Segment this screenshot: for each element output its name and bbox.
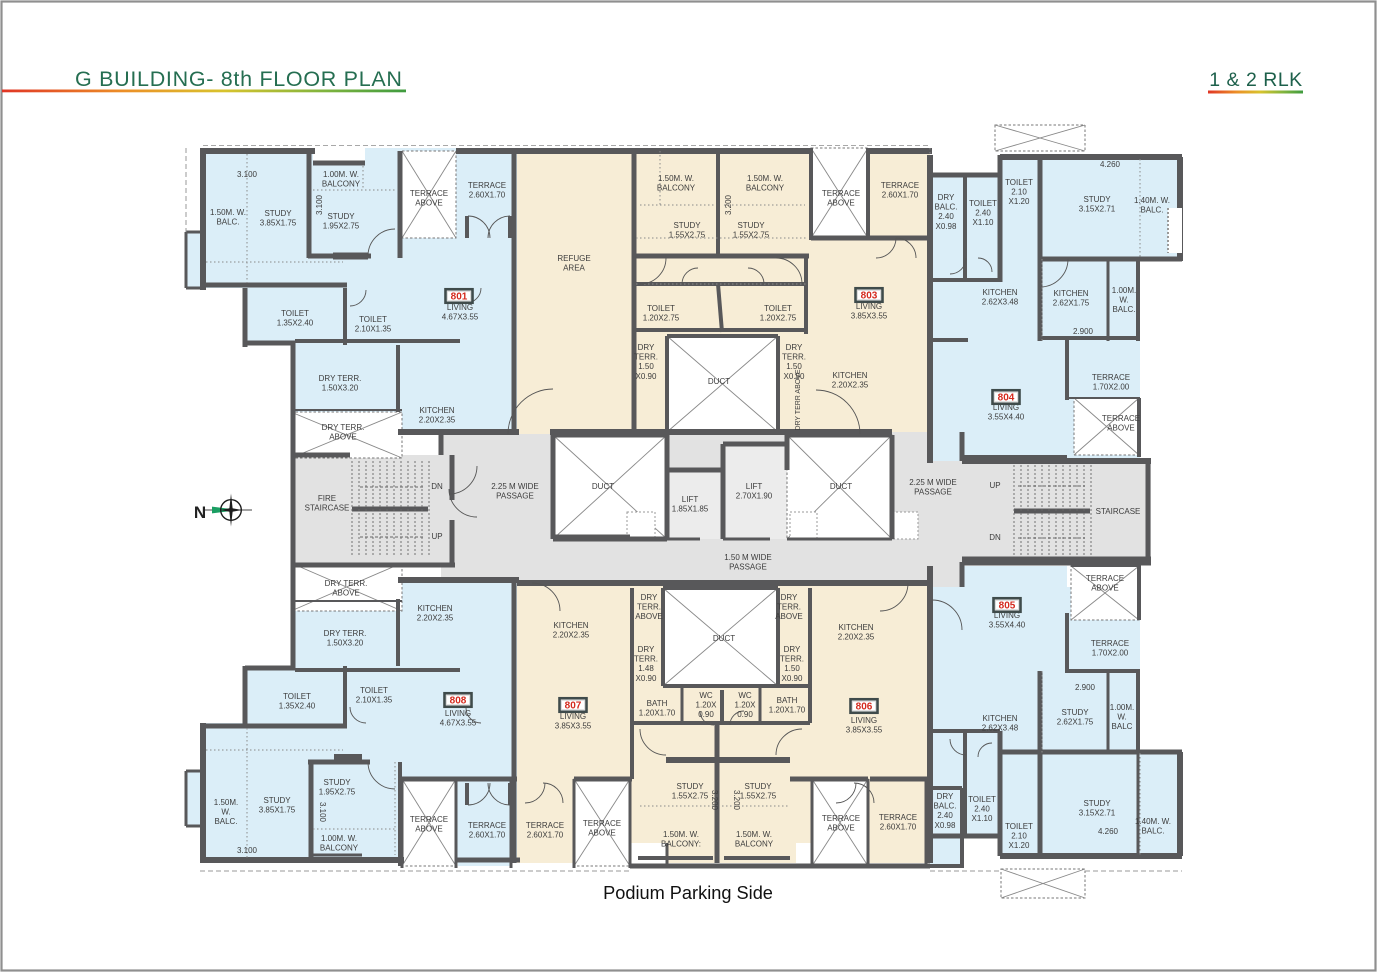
svg-text:PASSAGE: PASSAGE xyxy=(729,563,767,572)
svg-text:BALC.: BALC. xyxy=(214,817,237,826)
svg-text:0.90: 0.90 xyxy=(698,710,714,719)
svg-text:3.100: 3.100 xyxy=(237,170,258,179)
svg-text:TERR.: TERR. xyxy=(780,655,804,664)
svg-text:ABOVE: ABOVE xyxy=(1107,424,1135,433)
svg-text:TERRACE: TERRACE xyxy=(526,821,564,830)
svg-text:2.70X1.90: 2.70X1.90 xyxy=(736,492,773,501)
svg-text:W.: W. xyxy=(221,808,230,817)
svg-text:DRY: DRY xyxy=(937,792,954,801)
svg-text:TOILET: TOILET xyxy=(647,304,675,313)
svg-text:BALC.: BALC. xyxy=(1140,206,1163,215)
svg-text:LIFT: LIFT xyxy=(682,495,699,504)
svg-text:TERR.: TERR. xyxy=(637,603,661,612)
svg-text:BALC.: BALC. xyxy=(1141,827,1164,836)
svg-text:DRY: DRY xyxy=(784,645,801,654)
svg-text:DRY TERR.: DRY TERR. xyxy=(324,629,367,638)
svg-text:TERRACE: TERRACE xyxy=(822,814,860,823)
svg-text:808: 808 xyxy=(450,695,467,706)
svg-text:DRY: DRY xyxy=(638,645,655,654)
svg-text:TERR.: TERR. xyxy=(782,353,806,362)
svg-text:2.10X1.35: 2.10X1.35 xyxy=(355,325,392,334)
svg-text:1.20X1.70: 1.20X1.70 xyxy=(639,709,676,718)
svg-text:X1.20: X1.20 xyxy=(1009,841,1030,850)
svg-text:STAIRCASE: STAIRCASE xyxy=(1096,507,1141,516)
svg-text:807: 807 xyxy=(565,700,582,711)
svg-text:STUDY: STUDY xyxy=(263,796,291,805)
svg-text:BALC: BALC xyxy=(1112,722,1133,731)
svg-text:1.55X2.75: 1.55X2.75 xyxy=(740,792,777,801)
svg-text:2.20X2.35: 2.20X2.35 xyxy=(419,416,456,425)
svg-text:1.95X2.75: 1.95X2.75 xyxy=(319,788,356,797)
svg-text:KITCHEN: KITCHEN xyxy=(982,714,1017,723)
svg-text:DRY: DRY xyxy=(786,343,803,352)
svg-text:3.85X1.75: 3.85X1.75 xyxy=(260,219,297,228)
svg-text:1.50: 1.50 xyxy=(638,362,654,371)
svg-text:2.60X1.70: 2.60X1.70 xyxy=(469,191,506,200)
svg-text:TERRACE: TERRACE xyxy=(468,181,506,190)
svg-text:TERRACE: TERRACE xyxy=(583,819,621,828)
svg-text:3.85X3.55: 3.85X3.55 xyxy=(555,722,592,731)
svg-text:BALCONY: BALCONY xyxy=(320,844,359,853)
svg-text:1.00M.: 1.00M. xyxy=(1110,703,1134,712)
svg-text:AREA: AREA xyxy=(563,264,585,273)
svg-text:1.50M. W.: 1.50M. W. xyxy=(663,830,699,839)
svg-text:2.20X2.35: 2.20X2.35 xyxy=(417,614,454,623)
svg-text:BALC.: BALC. xyxy=(933,802,956,811)
svg-text:TERRACE: TERRACE xyxy=(1092,373,1130,382)
svg-text:X0.98: X0.98 xyxy=(936,222,957,231)
svg-text:Podium Parking Side: Podium Parking Side xyxy=(603,883,773,903)
svg-text:UP: UP xyxy=(989,481,1000,490)
svg-text:TOILET: TOILET xyxy=(360,686,388,695)
svg-text:W.: W. xyxy=(1117,713,1126,722)
svg-text:STUDY: STUDY xyxy=(1061,708,1089,717)
svg-text:2.40: 2.40 xyxy=(937,811,953,820)
svg-text:N: N xyxy=(194,503,206,522)
svg-text:BALCONY:: BALCONY: xyxy=(661,840,701,849)
svg-text:X0.90: X0.90 xyxy=(636,372,657,381)
svg-text:DRY: DRY xyxy=(938,193,955,202)
svg-text:TERRACE: TERRACE xyxy=(1086,574,1124,583)
svg-text:3.200: 3.200 xyxy=(710,790,719,811)
svg-text:TERRACE: TERRACE xyxy=(468,821,506,830)
svg-text:0.90: 0.90 xyxy=(737,710,753,719)
svg-text:X0.98: X0.98 xyxy=(935,821,956,830)
svg-text:1.00M.: 1.00M. xyxy=(1112,286,1136,295)
svg-text:TOILET: TOILET xyxy=(359,315,387,324)
svg-text:3.55X4.40: 3.55X4.40 xyxy=(989,621,1026,630)
svg-text:2.40: 2.40 xyxy=(975,209,991,218)
svg-text:PASSAGE: PASSAGE xyxy=(496,492,534,501)
svg-text:2.25 M WIDE: 2.25 M WIDE xyxy=(491,482,539,491)
svg-text:LIVING: LIVING xyxy=(447,303,473,312)
svg-text:2.20X2.35: 2.20X2.35 xyxy=(553,631,590,640)
svg-text:KITCHEN: KITCHEN xyxy=(982,288,1017,297)
svg-text:3.100: 3.100 xyxy=(237,846,258,855)
svg-text:2.62X1.75: 2.62X1.75 xyxy=(1057,718,1094,727)
svg-text:4.67X3.55: 4.67X3.55 xyxy=(440,719,477,728)
svg-text:DRY: DRY xyxy=(641,593,658,602)
svg-text:1.20X: 1.20X xyxy=(696,701,718,710)
svg-text:KITCHEN: KITCHEN xyxy=(1053,289,1088,298)
svg-text:ABOVE: ABOVE xyxy=(329,433,357,442)
svg-text:BALCONY: BALCONY xyxy=(735,840,774,849)
svg-text:UP: UP xyxy=(431,532,442,541)
svg-text:4.260: 4.260 xyxy=(1098,827,1119,836)
svg-text:TERR.: TERR. xyxy=(634,655,658,664)
svg-text:3.100: 3.100 xyxy=(315,194,324,215)
svg-text:1.55X2.75: 1.55X2.75 xyxy=(669,231,706,240)
svg-text:KITCHEN: KITCHEN xyxy=(553,621,588,630)
svg-text:KITCHEN: KITCHEN xyxy=(417,604,452,613)
svg-text:2.25 M WIDE: 2.25 M WIDE xyxy=(909,478,957,487)
svg-text:2.60X1.70: 2.60X1.70 xyxy=(527,831,564,840)
svg-text:1.20X2.75: 1.20X2.75 xyxy=(643,314,680,323)
svg-text:TOILET: TOILET xyxy=(1005,822,1033,831)
svg-text:ABOVE: ABOVE xyxy=(415,825,443,834)
svg-text:1.35X2.40: 1.35X2.40 xyxy=(277,319,314,328)
svg-text:3.85X3.55: 3.85X3.55 xyxy=(851,312,888,321)
svg-text:PASSAGE: PASSAGE xyxy=(914,488,952,497)
svg-text:1.40M. W.: 1.40M. W. xyxy=(1134,196,1170,205)
svg-text:803: 803 xyxy=(861,290,878,301)
svg-text:X1.20: X1.20 xyxy=(1009,197,1030,206)
svg-text:STUDY: STUDY xyxy=(1083,195,1111,204)
svg-text:TOILET: TOILET xyxy=(968,795,996,804)
svg-text:LIVING: LIVING xyxy=(856,302,882,311)
svg-text:TERRACE: TERRACE xyxy=(410,815,448,824)
svg-text:LIVING: LIVING xyxy=(445,709,471,718)
svg-text:BALC.: BALC. xyxy=(216,218,239,227)
svg-text:DRY: DRY xyxy=(781,593,798,602)
svg-text:1.50 M WIDE: 1.50 M WIDE xyxy=(724,553,772,562)
svg-text:3.15X2.71: 3.15X2.71 xyxy=(1079,205,1116,214)
svg-text:2.62X3.48: 2.62X3.48 xyxy=(982,724,1019,733)
svg-text:2.20X2.35: 2.20X2.35 xyxy=(838,633,875,642)
svg-text:1.50M. W.: 1.50M. W. xyxy=(210,208,246,217)
svg-text:DUCT: DUCT xyxy=(713,634,735,643)
svg-text:DUCT: DUCT xyxy=(592,482,614,491)
svg-text:DN: DN xyxy=(431,482,443,491)
svg-text:1.00M. W.: 1.00M. W. xyxy=(321,834,357,843)
svg-text:3.85X3.55: 3.85X3.55 xyxy=(846,726,883,735)
svg-text:1.50M. W.: 1.50M. W. xyxy=(736,830,772,839)
svg-text:DRY TERR.: DRY TERR. xyxy=(319,374,362,383)
svg-text:STUDY: STUDY xyxy=(327,212,355,221)
svg-text:1.00M. W.: 1.00M. W. xyxy=(323,170,359,179)
svg-text:1.50M.: 1.50M. xyxy=(214,798,238,807)
svg-text:TOILET: TOILET xyxy=(283,692,311,701)
svg-text:1.55X2.75: 1.55X2.75 xyxy=(733,231,770,240)
svg-text:G BUILDING- 8th FLOOR PLAN: G BUILDING- 8th FLOOR PLAN xyxy=(75,67,403,91)
svg-text:1.50: 1.50 xyxy=(784,664,800,673)
svg-text:BALCONY: BALCONY xyxy=(657,184,696,193)
svg-text:STAIRCASE: STAIRCASE xyxy=(305,504,350,513)
svg-text:DRY: DRY xyxy=(638,343,655,352)
svg-text:2.20X2.35: 2.20X2.35 xyxy=(832,381,869,390)
svg-text:LIVING: LIVING xyxy=(851,716,877,725)
svg-text:1.48: 1.48 xyxy=(638,664,654,673)
svg-text:STUDY: STUDY xyxy=(323,778,351,787)
svg-text:WC: WC xyxy=(699,691,713,700)
svg-text:2.60X1.70: 2.60X1.70 xyxy=(469,831,506,840)
svg-text:TOILET: TOILET xyxy=(969,199,997,208)
svg-text:X1.10: X1.10 xyxy=(972,814,993,823)
svg-text:STUDY: STUDY xyxy=(264,209,292,218)
svg-text:ABOVE: ABOVE xyxy=(635,612,663,621)
svg-text:BALCONY: BALCONY xyxy=(746,184,785,193)
svg-text:3.55X4.40: 3.55X4.40 xyxy=(988,413,1025,422)
svg-text:DN: DN xyxy=(989,533,1001,542)
svg-text:1.20X2.75: 1.20X2.75 xyxy=(760,314,797,323)
svg-text:1.50M. W.: 1.50M. W. xyxy=(747,174,783,183)
svg-text:BATH: BATH xyxy=(777,696,798,705)
svg-text:DRY TERR.: DRY TERR. xyxy=(325,579,368,588)
svg-text:3.15X2.71: 3.15X2.71 xyxy=(1079,809,1116,818)
svg-text:3.200: 3.200 xyxy=(732,790,741,811)
svg-text:KITCHEN: KITCHEN xyxy=(832,371,867,380)
svg-text:LIVING: LIVING xyxy=(560,712,586,721)
svg-text:1.55X2.75: 1.55X2.75 xyxy=(672,792,709,801)
svg-text:STUDY: STUDY xyxy=(673,221,701,230)
svg-text:801: 801 xyxy=(451,291,468,302)
svg-text:2.10X1.35: 2.10X1.35 xyxy=(356,696,393,705)
svg-text:BATH: BATH xyxy=(647,699,668,708)
svg-text:FIRE: FIRE xyxy=(318,494,336,503)
svg-text:STUDY: STUDY xyxy=(737,221,765,230)
svg-text:3.100: 3.100 xyxy=(318,802,327,823)
svg-text:TERR.: TERR. xyxy=(777,603,801,612)
svg-text:DRY TERR.: DRY TERR. xyxy=(322,423,365,432)
svg-text:BALC.: BALC. xyxy=(1112,305,1135,314)
svg-text:2.900: 2.900 xyxy=(1073,327,1094,336)
svg-text:2.40: 2.40 xyxy=(974,805,990,814)
svg-text:REFUGE: REFUGE xyxy=(557,254,590,263)
svg-text:805: 805 xyxy=(999,600,1016,611)
svg-text:TERRACE: TERRACE xyxy=(410,189,448,198)
svg-text:4.260: 4.260 xyxy=(1100,160,1121,169)
svg-text:2.62X1.75: 2.62X1.75 xyxy=(1053,299,1090,308)
svg-text:TOILET: TOILET xyxy=(281,309,309,318)
svg-text:2.60X1.70: 2.60X1.70 xyxy=(882,191,919,200)
svg-text:ABOVE: ABOVE xyxy=(827,824,855,833)
svg-text:TERRACE: TERRACE xyxy=(1091,639,1129,648)
svg-text:X1.10: X1.10 xyxy=(973,218,994,227)
svg-text:1.50X3.20: 1.50X3.20 xyxy=(322,384,359,393)
svg-text:DRY TERR ABOVE: DRY TERR ABOVE xyxy=(795,369,802,430)
svg-text:DUCT: DUCT xyxy=(830,482,852,491)
svg-text:STUDY: STUDY xyxy=(676,782,704,791)
svg-text:2.60X1.70: 2.60X1.70 xyxy=(880,823,917,832)
svg-text:3.85X1.75: 3.85X1.75 xyxy=(259,806,296,815)
svg-text:2.40: 2.40 xyxy=(938,212,954,221)
svg-text:TERRACE: TERRACE xyxy=(881,181,919,190)
svg-text:ABOVE: ABOVE xyxy=(588,829,616,838)
svg-text:TOILET: TOILET xyxy=(764,304,792,313)
svg-text:STUDY: STUDY xyxy=(744,782,772,791)
svg-text:1.70X2.00: 1.70X2.00 xyxy=(1092,649,1129,658)
svg-text:TERRACE: TERRACE xyxy=(879,813,917,822)
svg-text:W.: W. xyxy=(1119,296,1128,305)
svg-text:X0.90: X0.90 xyxy=(636,674,657,683)
svg-text:X0.90: X0.90 xyxy=(782,674,803,683)
svg-text:1.85X1.85: 1.85X1.85 xyxy=(672,505,709,514)
svg-text:ABOVE: ABOVE xyxy=(775,612,803,621)
svg-text:DUCT: DUCT xyxy=(708,377,730,386)
svg-text:1.20X1.70: 1.20X1.70 xyxy=(769,706,806,715)
svg-text:1.35X2.40: 1.35X2.40 xyxy=(279,702,316,711)
svg-text:STUDY: STUDY xyxy=(1083,799,1111,808)
svg-text:1.50M. W.: 1.50M. W. xyxy=(658,174,694,183)
svg-text:KITCHEN: KITCHEN xyxy=(419,406,454,415)
svg-text:WC: WC xyxy=(738,691,752,700)
svg-text:1.70X2.00: 1.70X2.00 xyxy=(1093,383,1130,392)
svg-text:ABOVE: ABOVE xyxy=(415,199,443,208)
svg-text:804: 804 xyxy=(998,392,1015,403)
svg-text:1.95X2.75: 1.95X2.75 xyxy=(323,222,360,231)
svg-text:BALCONY: BALCONY xyxy=(322,180,361,189)
svg-text:3.200: 3.200 xyxy=(724,194,733,215)
svg-text:4.67X3.55: 4.67X3.55 xyxy=(442,313,479,322)
svg-text:806: 806 xyxy=(856,701,873,712)
svg-text:BALC.: BALC. xyxy=(934,203,957,212)
svg-text:TERRACE: TERRACE xyxy=(822,189,860,198)
svg-text:ABOVE: ABOVE xyxy=(827,199,855,208)
svg-text:LIFT: LIFT xyxy=(746,482,763,491)
svg-text:KITCHEN: KITCHEN xyxy=(838,623,873,632)
svg-text:TERRACE: TERRACE xyxy=(1102,414,1140,423)
svg-text:1.50X3.20: 1.50X3.20 xyxy=(327,639,364,648)
svg-text:ABOVE: ABOVE xyxy=(1091,584,1119,593)
svg-text:2.10: 2.10 xyxy=(1011,832,1027,841)
svg-text:TERR.: TERR. xyxy=(634,353,658,362)
svg-text:TOILET: TOILET xyxy=(1005,178,1033,187)
svg-text:2.62X3.48: 2.62X3.48 xyxy=(982,298,1019,307)
svg-text:1.40M. W.: 1.40M. W. xyxy=(1135,817,1171,826)
svg-text:2.900: 2.900 xyxy=(1075,683,1096,692)
svg-text:ABOVE: ABOVE xyxy=(332,589,360,598)
svg-text:1.20X: 1.20X xyxy=(735,701,757,710)
svg-text:2.10: 2.10 xyxy=(1011,188,1027,197)
svg-text:1 & 2 RLK: 1 & 2 RLK xyxy=(1209,69,1302,91)
